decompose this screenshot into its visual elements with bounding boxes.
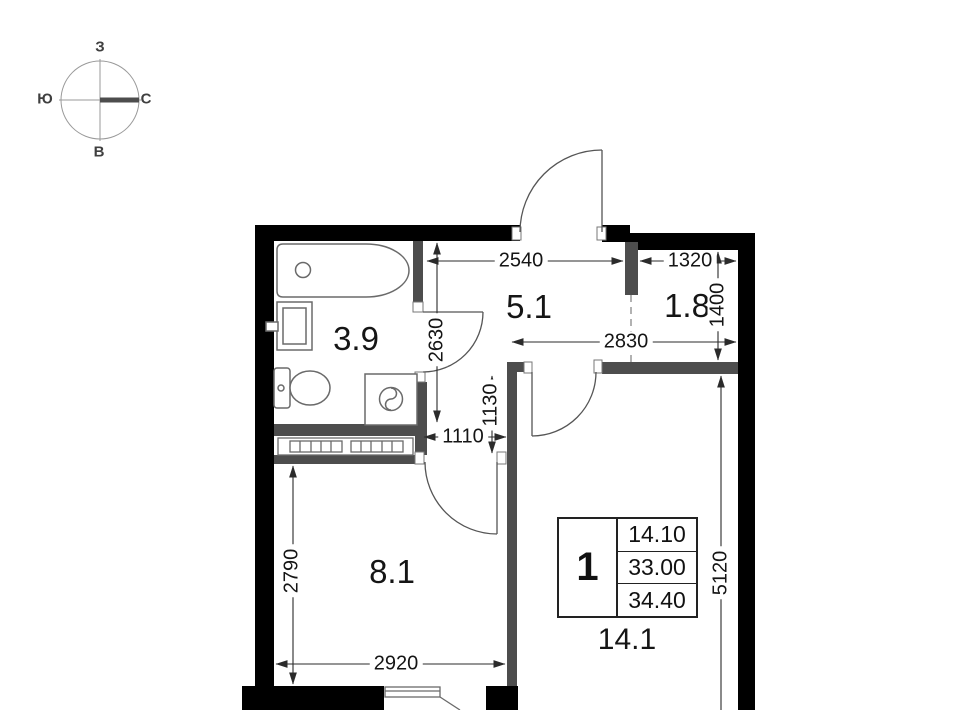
jamb-living-left <box>524 362 532 373</box>
dim-label-5120: 5120 <box>711 547 732 600</box>
washing-machine-icon <box>365 374 417 425</box>
living-room-door-swing <box>532 372 596 436</box>
faucet-icon <box>266 322 278 331</box>
dim-label-1130: 1130 <box>481 379 502 430</box>
wall-living-top-stub <box>507 362 524 372</box>
compass-east-label: В <box>94 144 105 161</box>
compass-rose <box>59 59 141 141</box>
dim-label-2540: 2540 <box>495 251 548 272</box>
bathtub-icon <box>277 244 409 297</box>
dim-label-2830: 2830 <box>600 332 653 353</box>
wall-kitchen-top <box>274 455 415 464</box>
room-label-hallway: 5.1 <box>506 288 552 326</box>
dim-label-2630: 2630 <box>427 314 448 367</box>
compass-north-label: С <box>141 91 152 108</box>
jamb-living-right <box>594 360 602 373</box>
toilet-icon <box>274 368 330 408</box>
dim-label-1320: 1320 <box>664 251 717 272</box>
dim-label-2790: 2790 <box>282 545 303 598</box>
room-label-living-room: 14.1 <box>598 623 656 657</box>
apartment-info-table: 1 14.10 33.00 34.40 <box>557 517 698 618</box>
dim-label-1110: 1110 <box>438 427 488 448</box>
floor-plan: З Ю С В 3.9 5.1 1.8 8.1 14.1 2540 1320 1… <box>0 0 960 710</box>
built-in-closet-icon <box>278 438 413 455</box>
rooms-count: 1 <box>559 519 618 616</box>
room-label-storage: 1.8 <box>664 287 710 325</box>
kitchen-door <box>425 462 497 534</box>
area-value: 33.00 <box>618 551 696 584</box>
kitchen-door-swing <box>425 462 497 534</box>
wall-top-left <box>255 225 520 241</box>
living-room-door <box>532 372 596 436</box>
living-area-value: 14.10 <box>618 519 696 551</box>
dim-label-2920: 2920 <box>370 654 423 675</box>
jamb-bath-top <box>413 302 423 312</box>
room-label-kitchen: 8.1 <box>369 553 415 591</box>
wall-bottom-left <box>242 686 384 710</box>
wall-storage-stub <box>625 242 638 295</box>
balcony-door-icon <box>385 687 460 710</box>
wall-bottom-middle <box>486 686 518 710</box>
flush-button-icon <box>278 385 284 391</box>
wall-bath-right-upper <box>413 241 423 302</box>
wall-bath-bottom <box>274 424 423 436</box>
entry-door <box>520 150 602 232</box>
wall-right <box>738 233 755 710</box>
room-label-bathroom: 3.9 <box>333 320 379 358</box>
compass-south-label: Ю <box>37 91 52 108</box>
dim-label-1400: 1400 <box>708 279 729 332</box>
jamb-kitchen-left <box>415 452 424 464</box>
jamb-kitchen-right <box>497 452 506 464</box>
compass-west-label: З <box>95 39 104 56</box>
total-area-value: 34.40 <box>618 583 696 616</box>
wall-living-top <box>602 362 738 374</box>
entry-door-swing <box>520 150 602 232</box>
wall-top-right <box>630 233 755 250</box>
wall-left <box>255 225 274 686</box>
wall-living-left <box>507 362 517 686</box>
